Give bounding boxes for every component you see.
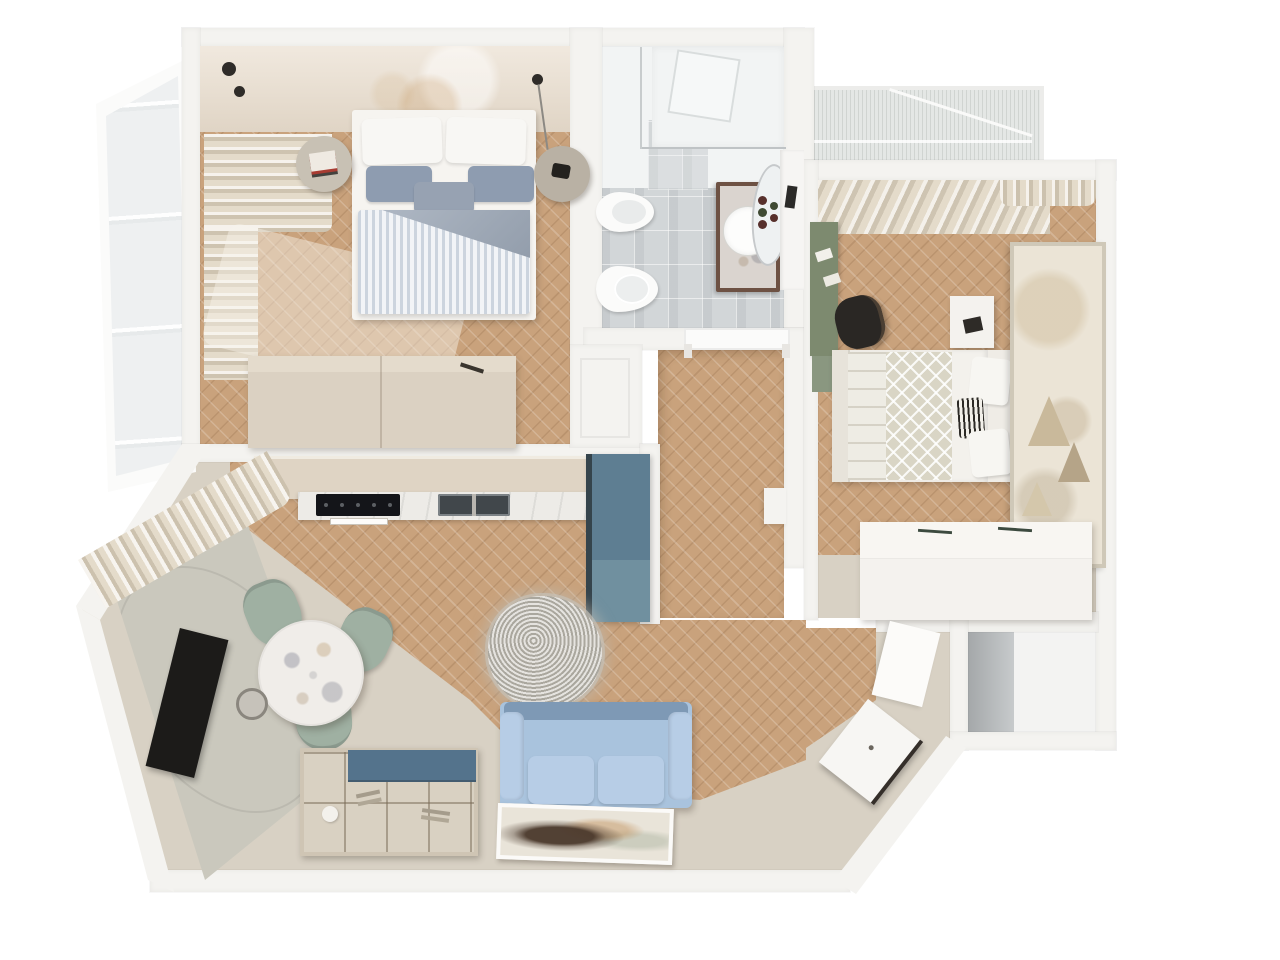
bed2-pillow-bottom [968, 428, 1013, 478]
sink-divider [472, 494, 476, 516]
hallway-niche-step [764, 488, 786, 524]
nightstand-right-lamp [551, 163, 571, 180]
tapestry-castle-shape-2 [1058, 442, 1090, 482]
organizer-item-sketch-2 [422, 808, 450, 816]
sofa-seat-cushion-right [598, 756, 664, 804]
pendant-lamp [236, 688, 268, 720]
desk-papers [815, 248, 833, 262]
bedroom2-bed [832, 350, 1016, 482]
vanity-plant-2 [770, 202, 778, 210]
bedroom1-wardrobe [248, 356, 516, 448]
vestibule-door-frame [580, 358, 630, 438]
shower-glass-vertical [640, 47, 642, 149]
organizer-blue-lid [348, 750, 476, 782]
bathroom-door-jamb-left [684, 344, 692, 358]
oven-handle [330, 518, 388, 525]
tall-blue-cabinet [586, 454, 650, 622]
bedroom1-nightstand-right [534, 146, 590, 202]
ceiling-spotlight-2 [234, 86, 245, 97]
bed1-pillow-white-left [361, 117, 443, 166]
bed2-quilt-white [848, 352, 886, 480]
sofa-back [504, 702, 688, 720]
bidet-bowl [612, 200, 646, 224]
tapestry-castle-shape-1 [1028, 396, 1070, 446]
storage-organizer [300, 748, 478, 856]
shower-glass-horizontal [640, 147, 786, 149]
wall-bedroom1-left [182, 28, 200, 458]
hallway-floor [658, 350, 784, 618]
dresser-top-face [860, 522, 1092, 559]
closet-grey-wall-face [966, 618, 1014, 740]
sofa-seat-cushion-left [528, 756, 594, 804]
sofa [500, 702, 692, 808]
bedroom1-bed [352, 110, 536, 320]
bedroom1-nightstand-left [296, 136, 352, 192]
bedroom2-desk [810, 222, 838, 356]
shower-tray-inner [667, 49, 740, 122]
organizer-item-ball [322, 806, 338, 822]
wall-closet-left [950, 618, 968, 750]
bed1-pillow-blue-right [468, 166, 534, 202]
nightstand-left-books [309, 150, 337, 171]
blue-cabinet-front [592, 560, 650, 622]
bedroom2-curtain-corner [1000, 180, 1096, 206]
bedroom2-nightstand [950, 296, 994, 348]
cooktop [316, 494, 400, 516]
wardrobe-seam [380, 356, 382, 448]
toilet-seat [614, 274, 650, 304]
organizer-item-sketch-1 [356, 790, 380, 799]
bed2-quilt-lattice [886, 352, 952, 480]
bedroom2-dresser [860, 522, 1092, 620]
balcony-rail-highlight [806, 140, 1032, 143]
bed1-pillow-white-right [445, 117, 527, 166]
door-handle [868, 744, 875, 751]
ceiling-spotlight-1 [222, 62, 236, 76]
sofa-arm-left [500, 712, 524, 800]
bathroom-door-frame [684, 328, 790, 350]
kitchen-sink [438, 494, 510, 516]
bathroom-shelf [780, 150, 804, 290]
bathroom-door-jamb-right [782, 344, 790, 358]
vanity-plant-1 [758, 196, 767, 205]
dining-table [258, 620, 364, 726]
bedroom2-wall-tapestry [1010, 242, 1106, 568]
wall-top [182, 28, 804, 46]
wall-rightwing-top [804, 160, 1116, 180]
bed1-duvet-fold [358, 210, 530, 314]
wall-living-bottom [150, 870, 850, 892]
tapestry-castle-shape-3 [1022, 482, 1052, 516]
nightstand2-item [963, 316, 984, 333]
bed1-duvet [358, 210, 530, 314]
shag-rug [488, 596, 602, 708]
cooktop-knobs [324, 503, 328, 507]
wall-hallway-right [784, 328, 806, 568]
sofa-arm-right [668, 712, 692, 800]
floor-plan-canvas [0, 0, 1280, 960]
wall-closet-bottom [950, 732, 1116, 750]
floor-painting [496, 803, 674, 865]
